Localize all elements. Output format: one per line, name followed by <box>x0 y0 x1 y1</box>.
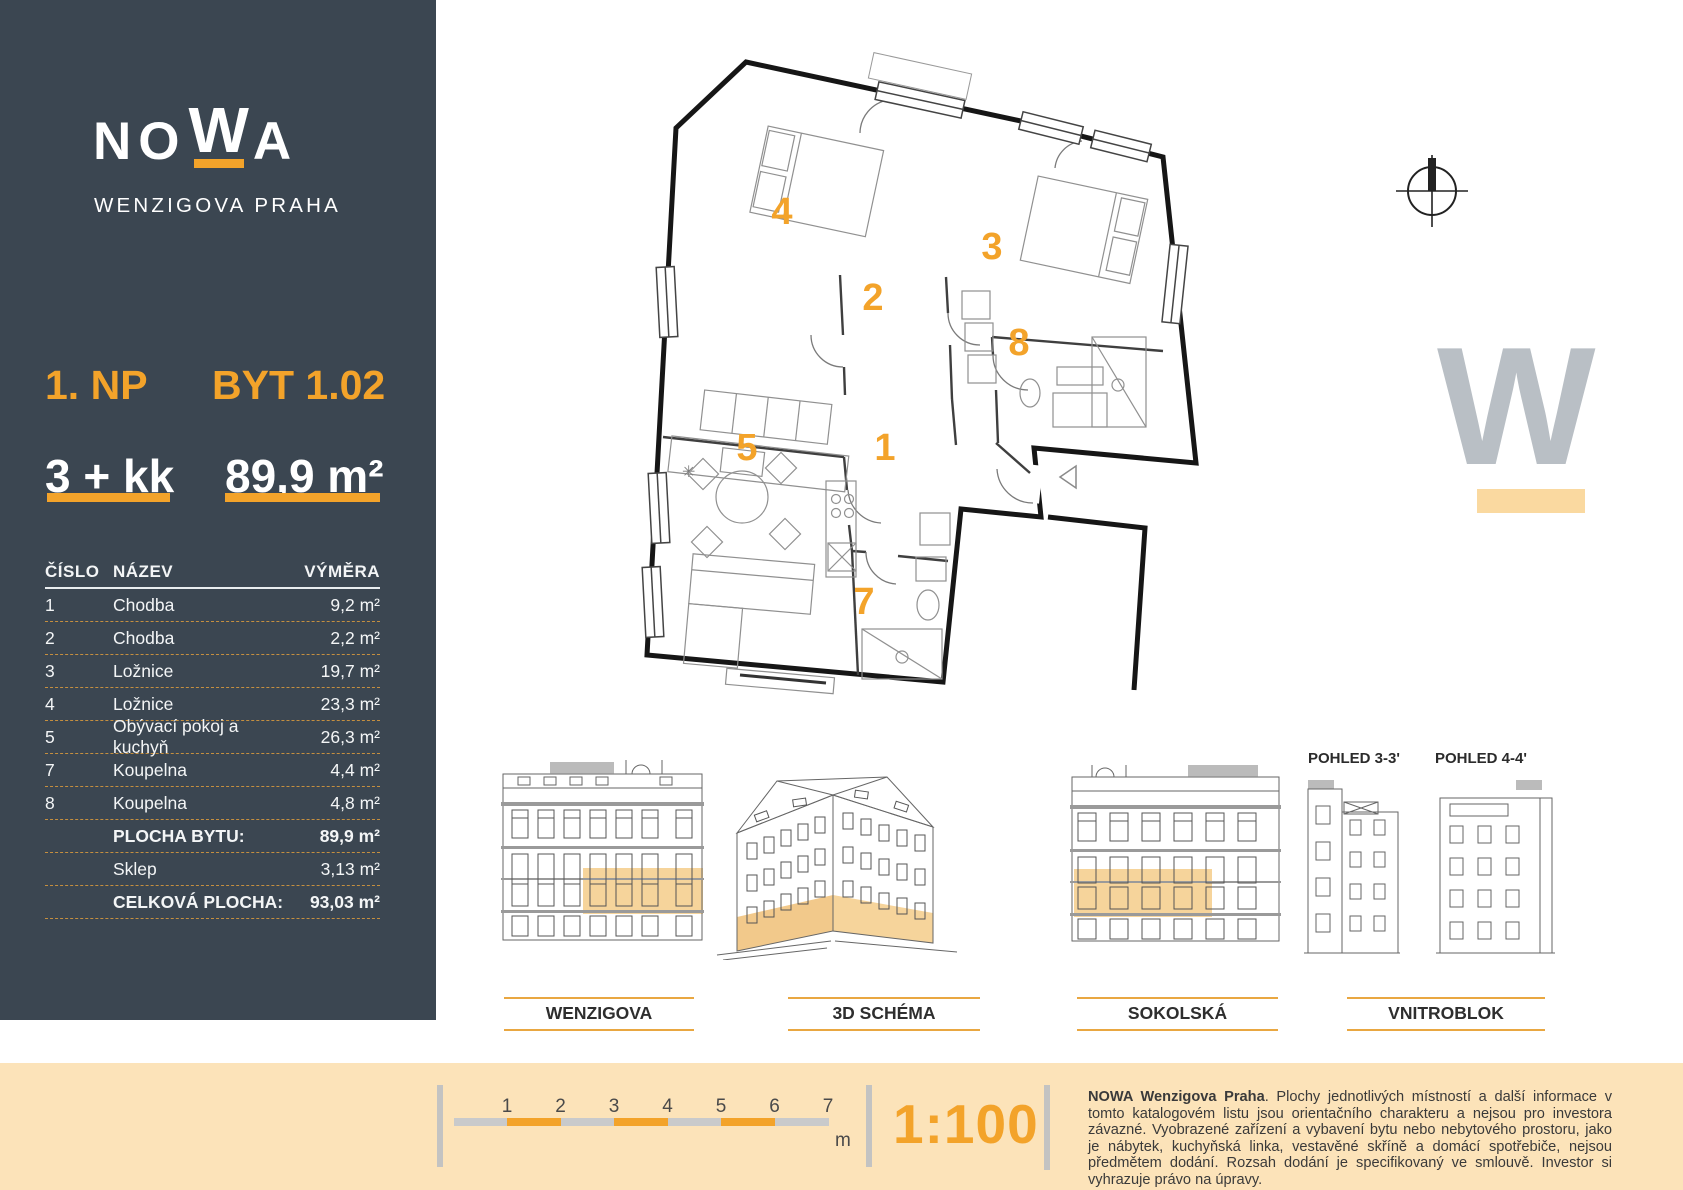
table-cell: 23,3 m² <box>290 694 380 715</box>
elevation-wenzigova <box>500 760 705 945</box>
logo-letter-w: W <box>189 104 249 156</box>
table-row: 8Koupelna4,8 m² <box>45 787 380 820</box>
table-cell: CELKOVÁ PLOCHA: <box>113 892 290 913</box>
table-cell: 9,2 m² <box>290 595 380 616</box>
header-cislo: ČÍSLO <box>45 562 113 582</box>
floor-plan: ✳ <box>630 45 1275 700</box>
table-row: Sklep3,13 m² <box>45 853 380 886</box>
table-cell: Koupelna <box>113 760 290 781</box>
sidebar: NO W A WENZIGOVA PRAHA 1. NP BYT 1.02 3 … <box>0 0 436 1020</box>
table-cell: 26,3 m² <box>290 727 380 748</box>
table-row: 3Ložnice19,7 m² <box>45 655 380 688</box>
label-sokolska: SOKOLSKÁ <box>1077 997 1278 1031</box>
logo-subtitle: WENZIGOVA PRAHA <box>94 194 341 218</box>
table-cell: Chodba <box>113 628 290 649</box>
layout-underline <box>47 493 170 502</box>
scale-number-1: 1 <box>497 1096 517 1118</box>
area-underline <box>225 493 380 502</box>
room-table-header: ČÍSLO NÁZEV VÝMĚRA <box>45 556 380 589</box>
table-cell: 2 <box>45 628 113 649</box>
disclaimer-text: NOWA Wenzigova Praha. Plochy jednotlivýc… <box>1088 1089 1612 1189</box>
room-number-1: 1 <box>874 429 895 467</box>
footer-strip: 1234567 m 1:100 NOWA Wenzigova Praha. Pl… <box>0 1063 1683 1190</box>
catalog-page: { "colors":{ "accent":"#F3A32A", "sideba… <box>0 0 1683 1190</box>
divider-bar-2 <box>866 1085 872 1167</box>
floor-plan-drawing: ✳ <box>630 45 1275 700</box>
table-row: 2Chodba2,2 m² <box>45 622 380 655</box>
divider-bar-3 <box>1044 1085 1050 1170</box>
room-number-3: 3 <box>981 228 1002 266</box>
scale-seg-2 <box>614 1118 668 1126</box>
entrance-arrow-icon <box>1060 466 1076 488</box>
scale-number-7: 7 <box>818 1096 838 1118</box>
watermark-bar <box>1477 489 1585 513</box>
scale-number-5: 5 <box>711 1096 731 1118</box>
logo-letter-a: A <box>253 115 298 168</box>
table-cell: 2,2 m² <box>290 628 380 649</box>
room-number-5: 5 <box>736 429 757 467</box>
table-cell: 4 <box>45 694 113 715</box>
scale-seg-3 <box>721 1118 775 1126</box>
table-cell: Obývací pokoj a kuchyň <box>113 716 290 758</box>
watermark-w: W <box>1437 322 1592 490</box>
label-3d-schema: 3D SCHÉMA <box>788 997 980 1031</box>
table-cell: 8 <box>45 793 113 814</box>
table-cell: 93,03 m² <box>290 892 380 913</box>
scale-unit: m <box>835 1130 851 1152</box>
logo-orange-bar <box>194 159 244 168</box>
context-wall <box>1048 517 1145 690</box>
vnitroblok-drawing <box>1300 750 1555 965</box>
scale-ratio: 1:100 <box>893 1092 1043 1156</box>
elevation-3d-schema <box>715 755 960 960</box>
label-wenzigova: WENZIGOVA <box>504 997 694 1031</box>
table-cell: Ložnice <box>113 661 290 682</box>
table-cell: 4,8 m² <box>290 793 380 814</box>
scale-number-6: 6 <box>765 1096 785 1118</box>
table-row: CELKOVÁ PLOCHA:93,03 m² <box>45 886 380 919</box>
table-cell: 5 <box>45 727 113 748</box>
unit-label: BYT 1.02 <box>212 362 385 409</box>
table-cell: 4,4 m² <box>290 760 380 781</box>
scale-number-3: 3 <box>604 1096 624 1118</box>
table-cell: Koupelna <box>113 793 290 814</box>
nowa-logo: NO W A <box>93 104 298 168</box>
scale-seg-1 <box>507 1118 561 1126</box>
label-vnitroblok: VNITROBLOK <box>1347 997 1545 1031</box>
room-number-4: 4 <box>771 193 792 231</box>
elevation-sokolska <box>1068 765 1283 947</box>
room-number-2: 2 <box>862 279 883 317</box>
table-cell: Ložnice <box>113 694 290 715</box>
compass-icon <box>1396 150 1472 236</box>
table-cell: Chodba <box>113 595 290 616</box>
table-cell: 3,13 m² <box>290 859 380 880</box>
header-vymera: VÝMĚRA <box>290 562 380 582</box>
disclaimer-lead: NOWA Wenzigova Praha <box>1088 1089 1265 1105</box>
scale-number-4: 4 <box>658 1096 678 1118</box>
room-table: ČÍSLO NÁZEV VÝMĚRA 1Chodba9,2 m²2Chodba2… <box>45 556 380 919</box>
logo-w-block: W <box>189 104 249 168</box>
table-row: 5Obývací pokoj a kuchyň26,3 m² <box>45 721 380 754</box>
table-row: PLOCHA BYTU:89,9 m² <box>45 820 380 853</box>
room-number-8: 8 <box>1008 324 1029 362</box>
scale-number-2: 2 <box>551 1096 571 1118</box>
room-number-7: 7 <box>853 583 874 621</box>
logo-letters-no: NO <box>93 115 187 168</box>
table-cell: Sklep <box>113 859 290 880</box>
divider-bar-1 <box>437 1085 443 1167</box>
elevation-vnitroblok: POHLED 3-3' POHLED 4-4' <box>1300 750 1555 965</box>
scale-bar: 1234567 m <box>454 1063 854 1190</box>
table-row: 1Chodba9,2 m² <box>45 589 380 622</box>
floor-label: 1. NP <box>45 362 148 409</box>
table-cell: 3 <box>45 661 113 682</box>
table-cell: PLOCHA BYTU: <box>113 826 290 847</box>
table-cell: 19,7 m² <box>290 661 380 682</box>
table-cell: 7 <box>45 760 113 781</box>
table-cell: 89,9 m² <box>290 826 380 847</box>
header-nazev: NÁZEV <box>113 562 290 582</box>
table-cell: 1 <box>45 595 113 616</box>
room-table-body: 1Chodba9,2 m²2Chodba2,2 m²3Ložnice19,7 m… <box>45 589 380 919</box>
table-row: 7Koupelna4,4 m² <box>45 754 380 787</box>
